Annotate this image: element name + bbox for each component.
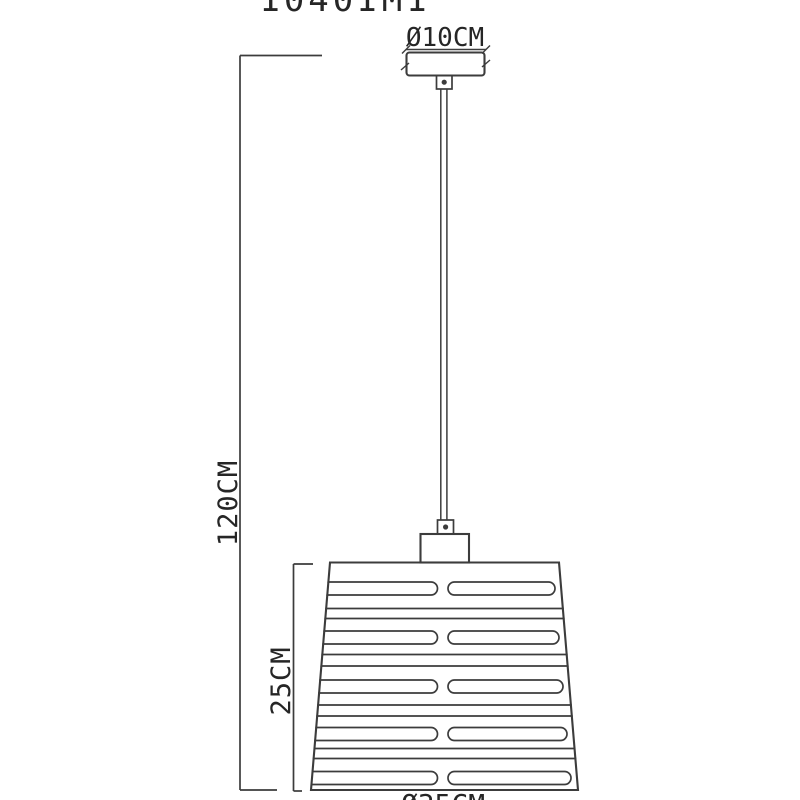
slot-right — [448, 680, 563, 693]
socket-housing — [421, 534, 470, 563]
product-code-label: 1040IM1 — [259, 0, 430, 20]
shade-height-label: 25CM — [266, 646, 297, 715]
pendant-lamp-dimension-diagram: 1040IM1 Ø10CM — [0, 0, 800, 800]
slot-left — [290, 728, 438, 741]
overall-height-label: 120CM — [213, 460, 244, 546]
slot-row-2 — [290, 631, 559, 644]
slot-row-3 — [290, 680, 563, 693]
slot-left — [290, 631, 438, 644]
slot-row-1 — [290, 582, 555, 595]
canopy-side-tick-left — [401, 63, 409, 70]
canopy-diameter-label: Ø10CM — [406, 23, 484, 53]
lampshade-slat-pattern — [290, 582, 592, 785]
slot-row-5 — [290, 772, 571, 785]
canopy-connector-dot — [442, 80, 447, 85]
slot-left — [290, 582, 438, 595]
shade-connector-dot — [443, 524, 448, 529]
canopy-dimension: Ø10CM — [402, 23, 490, 54]
slot-row-4 — [290, 728, 567, 741]
slot-right — [448, 582, 555, 595]
lampshade-outline — [311, 563, 578, 791]
shade-diameter-label: Ø35CM — [401, 788, 485, 800]
suspension-cord — [441, 90, 447, 521]
canopy-body — [407, 53, 485, 76]
lampshade — [290, 563, 592, 791]
cord-shade-fitting — [421, 520, 470, 563]
shade-height-dimension: 25CM — [266, 564, 313, 791]
slot-right — [448, 631, 559, 644]
slot-right — [448, 728, 567, 741]
slot-left — [290, 680, 438, 693]
slot-right — [448, 772, 571, 785]
ceiling-canopy — [401, 53, 490, 90]
canopy-side-tick-right — [482, 60, 490, 67]
diagram-canvas: 1040IM1 Ø10CM — [0, 0, 800, 800]
